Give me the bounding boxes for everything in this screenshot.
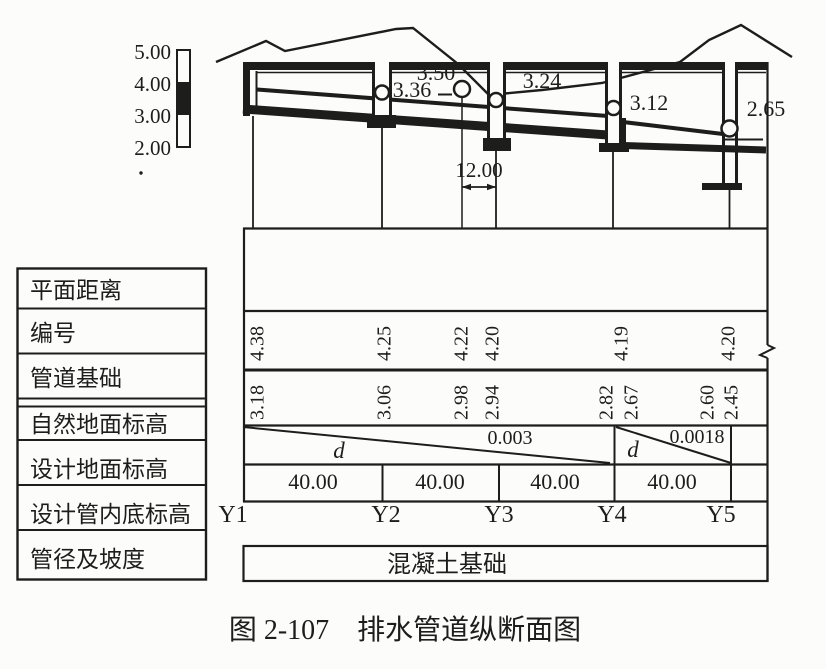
scale-bar-black-band — [177, 82, 190, 115]
distance-3: 40.00 — [530, 469, 580, 494]
label-crossing-bottom: 3.36 — [393, 77, 432, 102]
figure-page: 5.00 4.00 3.00 2.00 — [0, 0, 826, 669]
slope-diagonal-1 — [243, 427, 610, 463]
scan-speck — [139, 171, 142, 174]
invert-y5-in: 2.60 — [697, 385, 719, 420]
invert-y1: 3.18 — [247, 385, 269, 420]
distance-1: 40.00 — [288, 469, 338, 494]
row-header-natural-ground: 自然地面标高 — [30, 412, 168, 437]
pipe-crown-line-2 — [623, 122, 723, 134]
station-y4: Y4 — [597, 502, 626, 528]
label-y4-crown: 3.12 — [630, 90, 669, 115]
scale-label-4: 4.00 — [134, 72, 171, 96]
natural-ground-elevations: 4.38 4.25 4.22 4.20 4.19 4.20 — [247, 326, 740, 361]
station-y5: Y5 — [706, 502, 735, 528]
invert-y2: 3.06 — [374, 385, 396, 420]
slope-2-value: 0.0018 — [670, 426, 725, 448]
ground-elev-y1: 4.38 — [247, 326, 269, 361]
pipe-invert-line-2 — [623, 146, 766, 151]
row-header-design-invert: 设计管内底标高 — [30, 502, 191, 527]
ground-elev-y3: 4.20 — [482, 326, 504, 361]
break-symbol — [760, 345, 774, 358]
invert-crossing: 2.98 — [451, 385, 473, 420]
scale-label-5: 5.00 — [134, 40, 171, 64]
foundation-label: 混凝土基础 — [387, 551, 507, 578]
figure-canvas: 5.00 4.00 3.00 2.00 — [0, 0, 826, 669]
station-y1: Y1 — [218, 502, 247, 528]
pipe-marker-y2 — [375, 86, 389, 100]
invert-y3: 2.94 — [482, 385, 504, 420]
row-header-pipe-foundation: 管道基础 — [30, 366, 122, 391]
invert-y4-in: 2.82 — [596, 385, 618, 420]
row-header-diameter-slope: 管径及坡度 — [30, 547, 145, 572]
profile-drawing: 3.50 3.36 3.24 3.12 2.65 12.00 — [216, 25, 792, 229]
invert-elevations: 3.18 3.06 2.98 2.94 2.82 2.67 2.60 2.45 — [247, 385, 743, 420]
row-header-design-ground: 设计地面标高 — [30, 457, 168, 482]
scale-label-2: 2.00 — [134, 136, 171, 160]
ground-elev-y2: 4.25 — [374, 326, 396, 361]
dimension-text: 12.00 — [455, 158, 502, 182]
ground-elev-y5: 4.20 — [718, 326, 740, 361]
label-y5-crown: 2.65 — [747, 96, 786, 121]
pipe-marker-y5 — [722, 121, 738, 137]
distance-4: 40.00 — [647, 469, 697, 494]
invert-y4-out: 2.67 — [621, 385, 643, 420]
pipe-marker-y3 — [489, 93, 503, 107]
invert-y5-out: 2.45 — [721, 385, 743, 420]
slope-2-symbol: d — [627, 437, 639, 462]
header-column: 平面距离 编号 管道基础 自然地面标高 设计地面标高 设计管内底标高 管径及坡度 — [18, 269, 207, 580]
station-y3: Y3 — [484, 502, 513, 528]
scale-label-3: 3.00 — [134, 104, 171, 128]
ground-elev-y4: 4.19 — [611, 326, 633, 361]
elevation-scale-bar: 5.00 4.00 3.00 2.00 — [134, 40, 190, 175]
row-header-number: 编号 — [30, 321, 76, 346]
distance-2: 40.00 — [415, 469, 465, 494]
crossing-pipe-circle — [454, 81, 470, 97]
slope-1-symbol: d — [333, 438, 345, 463]
station-y2: Y2 — [371, 502, 400, 528]
figure-caption: 图 2-107 排水管道纵断面图 — [229, 614, 581, 646]
slope-1-value: 0.003 — [488, 427, 533, 449]
pipe-marker-y4 — [607, 101, 621, 115]
row-header-plan-distance: 平面距离 — [30, 278, 122, 303]
ground-elev-crossing: 4.22 — [451, 326, 473, 361]
label-y3-crown: 3.24 — [523, 68, 562, 93]
